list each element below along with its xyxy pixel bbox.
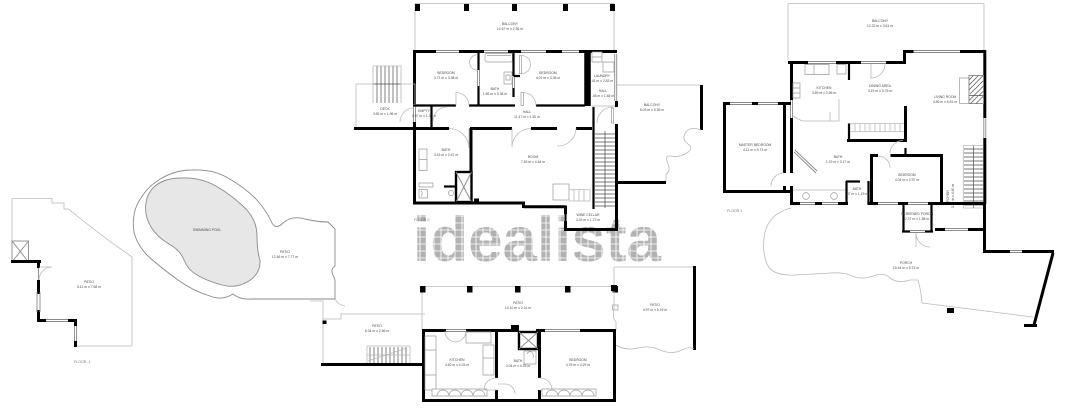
svg-text:3.23 m x 1.72 m: 3.23 m x 1.72 m (576, 218, 600, 222)
svg-text:3.69 m x 3.56 m: 3.69 m x 3.56 m (812, 91, 836, 95)
svg-text:ROOM: ROOM (528, 155, 539, 159)
svg-text:BATH: BATH (442, 148, 451, 152)
svg-text:4.11 m x 5.73 m: 4.11 m x 5.73 m (743, 148, 767, 152)
svg-text:14.10 m x 2.14 m: 14.10 m x 2.14 m (505, 306, 531, 310)
svg-text:BATH: BATH (491, 87, 500, 91)
svg-text:DECK: DECK (380, 107, 390, 111)
svg-text:PATIO: PATIO (513, 301, 523, 305)
svg-text:3.69 m x 1.96 m: 3.69 m x 1.96 m (373, 112, 397, 116)
svg-text:FLOOR -1: FLOOR -1 (74, 360, 91, 364)
svg-text:SCREENED PORCH: SCREENED PORCH (901, 212, 934, 216)
svg-text:DINING AREA: DINING AREA (869, 84, 892, 88)
svg-text:12.46 m x 7.77 m: 12.46 m x 7.77 m (272, 255, 298, 259)
svg-text:PORCH: PORCH (900, 261, 913, 265)
svg-text:BATH: BATH (514, 359, 523, 363)
svg-text:KITCHEN: KITCHEN (450, 358, 465, 362)
svg-text:PATIO: PATIO (280, 250, 290, 254)
svg-text:3.19 m x 3.75 m: 3.19 m x 3.75 m (868, 89, 892, 93)
svg-text:MASTER BEDROOM: MASTER BEDROOM (739, 143, 772, 147)
svg-text:4.56 m x 5.51 m: 4.56 m x 5.51 m (933, 100, 957, 104)
svg-text:7.63 m x 4.64 m: 7.63 m x 4.64 m (521, 160, 545, 164)
svg-text:BATH: BATH (853, 187, 862, 191)
svg-text:LAUNDRY: LAUNDRY (594, 74, 611, 78)
svg-text:BEDROOM: BEDROOM (539, 71, 557, 75)
svg-text:4.01 m x 3.36 m: 4.01 m x 3.36 m (536, 76, 560, 80)
svg-text:4.76 m x 4.29 m: 4.76 m x 4.29 m (566, 363, 590, 367)
svg-text:BEDROOM: BEDROOM (898, 173, 916, 177)
svg-text:BEDROOM: BEDROOM (437, 71, 455, 75)
svg-text:PATIO: PATIO (650, 303, 660, 307)
svg-text:BALCONY: BALCONY (502, 22, 519, 26)
svg-text:1.66 m x 3.38 m: 1.66 m x 3.38 m (483, 92, 507, 96)
svg-text:PATIO: PATIO (84, 280, 94, 284)
svg-text:4.40 m x 4.03 m: 4.40 m x 4.03 m (445, 363, 469, 367)
svg-text:.45 m x 1.48 m: .45 m x 1.48 m (592, 94, 615, 98)
svg-text:.87 m x 1.19 m: .87 m x 1.19 m (846, 192, 869, 196)
svg-text:0.97 m x 1.39 m: 0.97 m x 1.39 m (412, 114, 436, 118)
svg-text:.41 m x 2.83 m: .41 m x 2.83 m (591, 79, 614, 83)
svg-text:SWIMMING POOL: SWIMMING POOL (193, 228, 222, 232)
svg-text:FOYER: FOYER (946, 190, 950, 202)
svg-text:11.47 m x 1.30 m: 11.47 m x 1.30 m (514, 115, 540, 119)
svg-text:HALL: HALL (599, 89, 608, 93)
svg-text:KITCHEN: KITCHEN (817, 86, 832, 90)
svg-text:BALCONY: BALCONY (644, 103, 661, 107)
svg-text:BATH: BATH (834, 155, 843, 159)
svg-text:4.97 m x 5.19 m: 4.97 m x 5.19 m (643, 308, 667, 312)
svg-text:BEDROOM: BEDROOM (569, 358, 587, 362)
svg-text:FLOOR 1: FLOOR 1 (727, 209, 742, 213)
svg-text:LIVING ROOM: LIVING ROOM (934, 95, 957, 99)
svg-text:3.43 m x 2.67 m: 3.43 m x 2.67 m (434, 153, 458, 157)
svg-text:BALCONY: BALCONY (872, 19, 889, 23)
svg-text:WINE CELLAR: WINE CELLAR (577, 213, 601, 217)
svg-text:12.67 m x 2.36 m: 12.67 m x 2.36 m (497, 27, 523, 31)
svg-text:PATIO: PATIO (372, 324, 382, 328)
svg-text:FLOOR 0: FLOOR 0 (414, 218, 429, 222)
svg-text:4.04 m x 2.97 m: 4.04 m x 2.97 m (895, 178, 919, 182)
svg-text:5.03 m x 6.39 m: 5.03 m x 6.39 m (640, 108, 664, 112)
svg-text:19.44 m x 5.73 m: 19.44 m x 5.73 m (893, 266, 919, 270)
svg-text:HALL: HALL (523, 110, 532, 114)
svg-text:EMPTY: EMPTY (418, 109, 430, 113)
svg-text:3.71 m x 3.38 m: 3.71 m x 3.38 m (434, 76, 458, 80)
svg-text:5.11 m x 7.68 m: 5.11 m x 7.68 m (77, 285, 101, 289)
svg-text:6.34 m x 2.56 m: 6.34 m x 2.56 m (365, 329, 389, 333)
svg-text:3.04 m x 4.25 m: 3.04 m x 4.25 m (506, 364, 530, 368)
svg-text:1.19 m x 3.17 m: 1.19 m x 3.17 m (826, 160, 850, 164)
svg-text:12.22 m x 3.61 m: 12.22 m x 3.61 m (867, 24, 893, 28)
svg-text:2.37 m x 1.58 m: 2.37 m x 1.58 m (905, 217, 929, 221)
